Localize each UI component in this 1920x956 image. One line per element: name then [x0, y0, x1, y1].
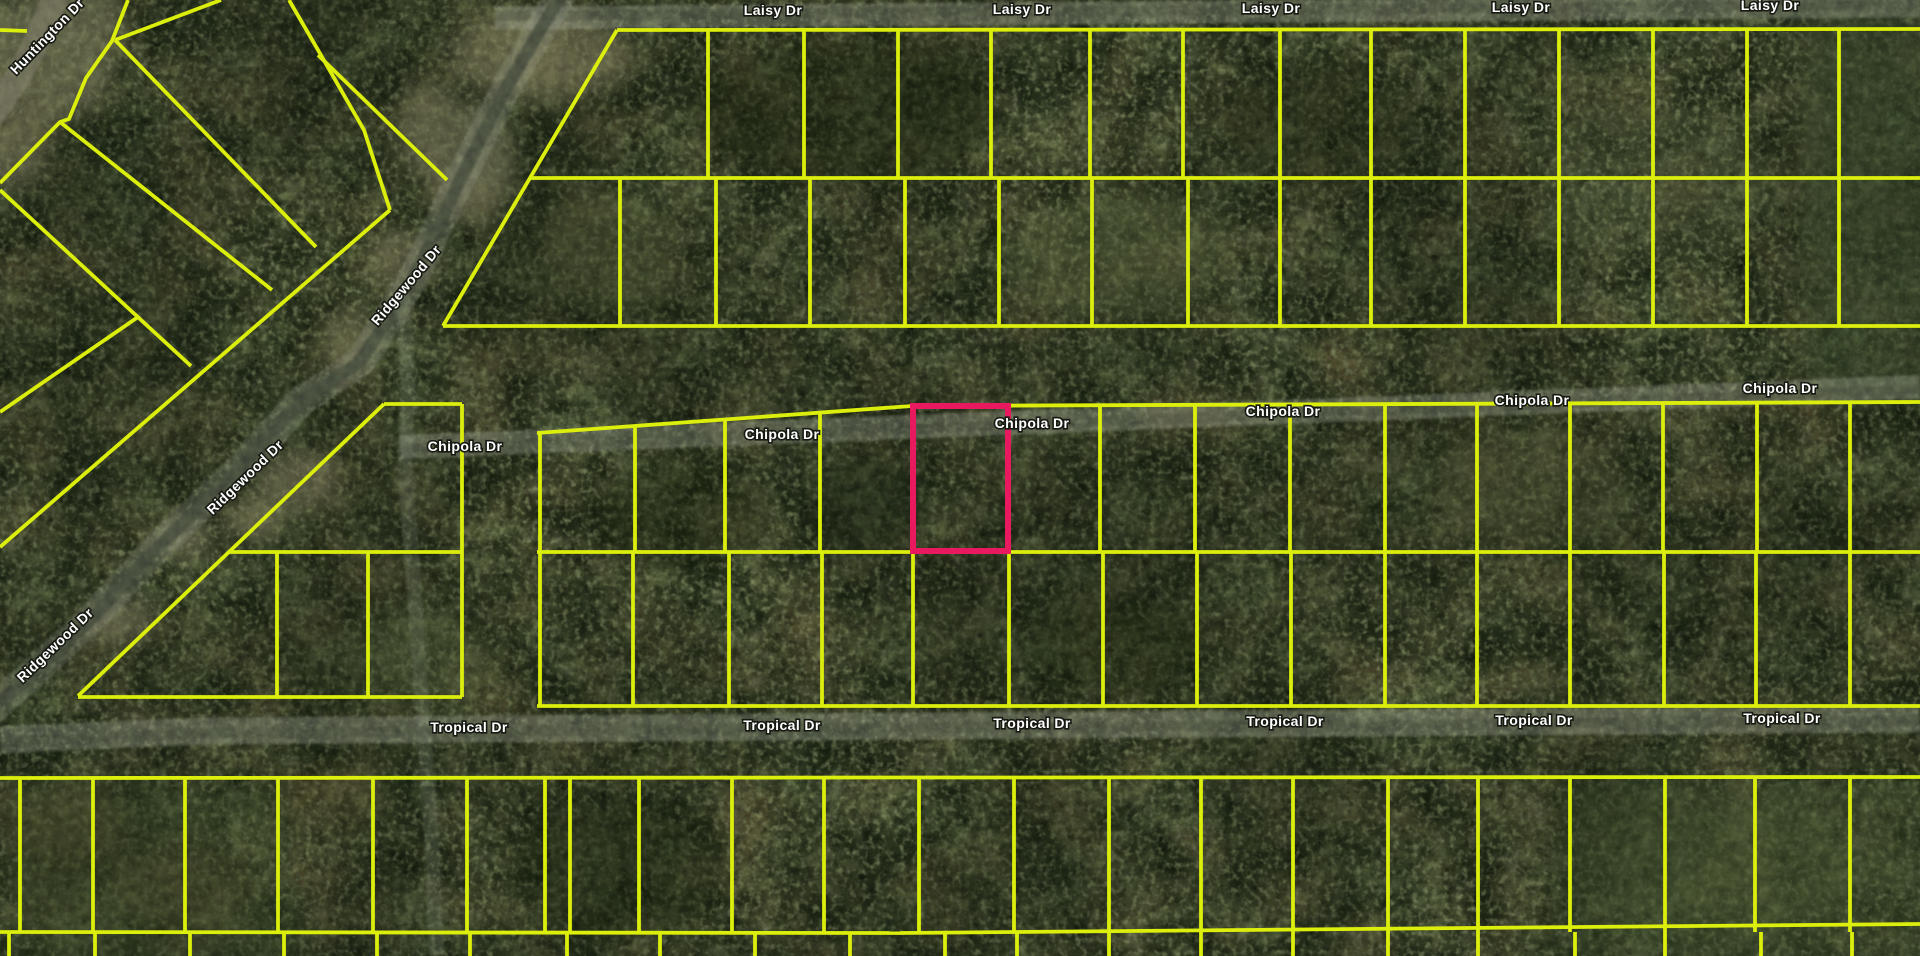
svg-text:Chipola Dr: Chipola Dr	[745, 426, 820, 442]
svg-text:Chipola Dr: Chipola Dr	[995, 415, 1070, 431]
svg-text:Tropical Dr: Tropical Dr	[743, 717, 821, 733]
svg-text:Tropical Dr: Tropical Dr	[1495, 712, 1573, 728]
svg-text:Laisy Dr: Laisy Dr	[1242, 0, 1301, 16]
svg-text:Laisy Dr: Laisy Dr	[1492, 0, 1551, 15]
svg-text:Laisy Dr: Laisy Dr	[1741, 0, 1800, 13]
svg-text:Chipola Dr: Chipola Dr	[428, 438, 503, 454]
svg-text:Tropical Dr: Tropical Dr	[430, 719, 508, 735]
svg-text:Tropical Dr: Tropical Dr	[1743, 710, 1821, 726]
svg-text:Tropical Dr: Tropical Dr	[1246, 713, 1324, 729]
svg-text:Chipola Dr: Chipola Dr	[1246, 403, 1321, 419]
svg-text:Laisy Dr: Laisy Dr	[744, 2, 803, 18]
svg-text:Chipola Dr: Chipola Dr	[1743, 380, 1818, 396]
svg-text:Laisy Dr: Laisy Dr	[993, 1, 1052, 17]
svg-text:Chipola Dr: Chipola Dr	[1495, 392, 1570, 408]
svg-text:Tropical Dr: Tropical Dr	[993, 715, 1071, 731]
